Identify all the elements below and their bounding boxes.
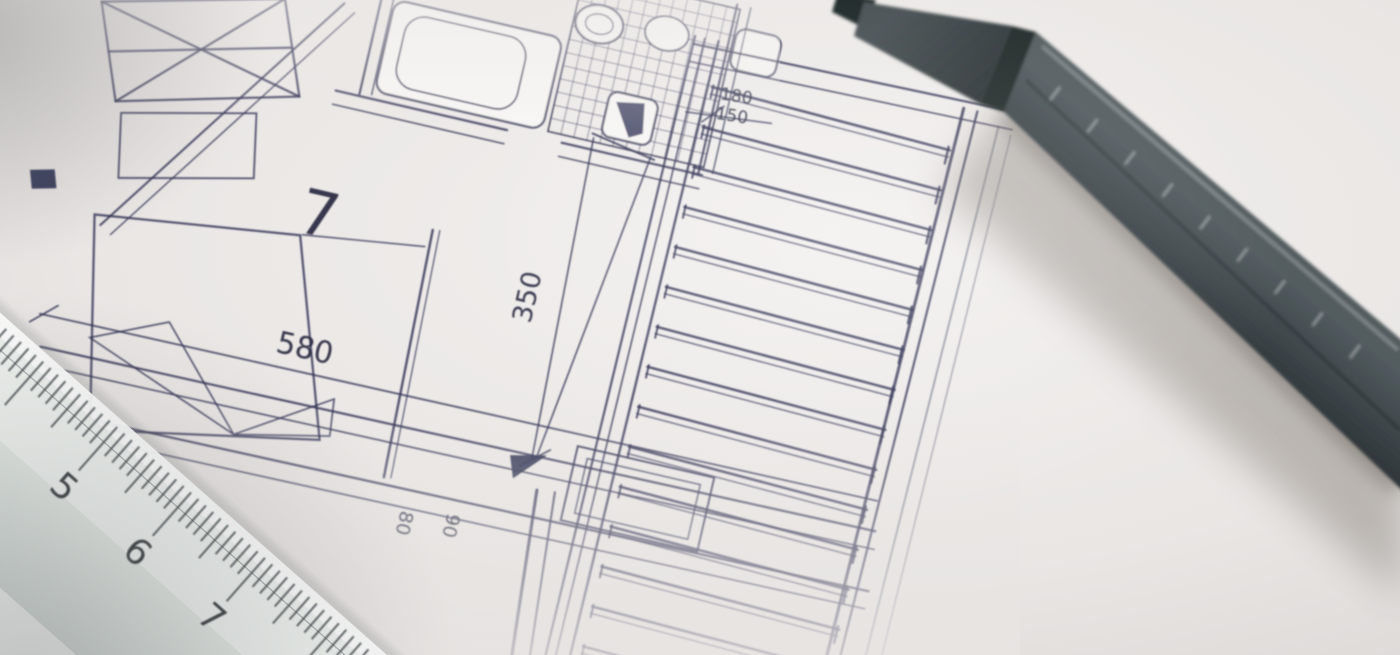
floor-plan-photo: 7 580 350 80 90 [0, 0, 1400, 655]
scene: 7 580 350 80 90 [0, 0, 1400, 655]
